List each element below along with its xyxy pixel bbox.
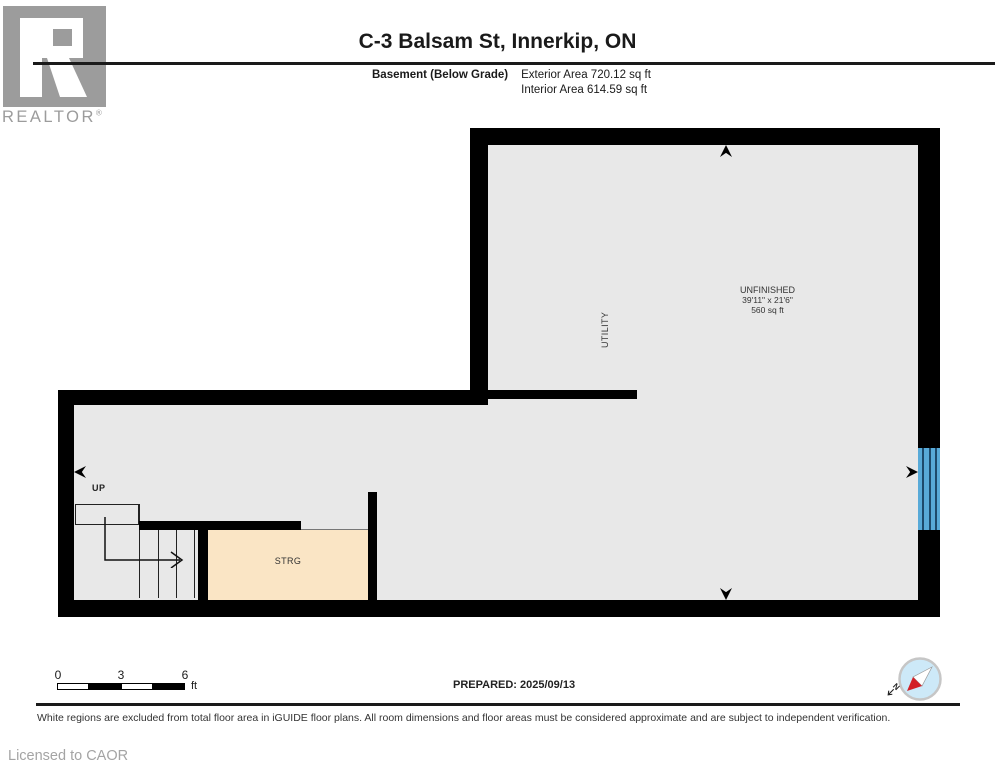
floor-summary: Basement (Below Grade) Exterior Area 720…: [372, 68, 651, 98]
wall-main-left: [470, 128, 488, 405]
storage-room-label: STRG: [238, 556, 338, 566]
page-title: C-3 Balsam St, Innerkip, ON: [0, 30, 995, 54]
scale-bar-segment: [89, 683, 121, 690]
wall-stair-divider: [198, 521, 208, 600]
wall-left-outer: [58, 390, 74, 617]
window-pane-line: [929, 448, 931, 530]
measure-arrow-right-icon: [906, 466, 918, 478]
realtor-logo-icon: [3, 6, 106, 107]
registered-mark: ®: [96, 109, 102, 118]
realtor-wordmark: REALTOR®: [2, 108, 132, 127]
brand-name: REALTOR: [2, 108, 96, 126]
wall-storage-top: [139, 521, 301, 530]
wall-utility-divider: [488, 390, 637, 399]
scale-bar-segment: [121, 683, 153, 690]
main-room-floor: [478, 138, 923, 602]
utility-room-label: UTILITY: [600, 303, 610, 357]
floor-areas: Exterior Area 720.12 sq ft Interior Area…: [521, 68, 651, 98]
scale-tick-0: 0: [55, 668, 62, 682]
interior-area-value: Interior Area 614.59 sq ft: [521, 83, 651, 98]
wall-top: [470, 128, 940, 145]
footer-divider: [36, 703, 960, 706]
measure-arrow-down-icon: [720, 588, 732, 600]
header-divider: [33, 62, 995, 65]
stair-tread: [194, 529, 195, 598]
stairs-up-label: UP: [92, 483, 106, 493]
measure-arrow-left-icon: [74, 466, 86, 478]
wall-lower-top: [58, 390, 488, 405]
window-pane-line: [922, 448, 924, 530]
scale-bar-segment: [153, 683, 185, 690]
wall-right-upper: [918, 128, 940, 448]
compass-icon: [896, 655, 944, 703]
scale-tick-3: 3: [118, 668, 125, 682]
stair-direction-arrow-icon: [98, 510, 190, 568]
window-icon: [918, 448, 940, 530]
window-pane-line: [935, 448, 937, 530]
floor-name-label: Basement (Below Grade): [372, 68, 508, 98]
exterior-area-value: Exterior Area 720.12 sq ft: [521, 68, 651, 83]
disclaimer-text: White regions are excluded from total fl…: [37, 712, 967, 724]
wall-bottom: [58, 600, 940, 617]
room-area: 560 sq ft: [700, 306, 835, 316]
north-indicator-icon: N: [883, 680, 903, 700]
scale-tick-6: 6: [182, 668, 189, 682]
measure-arrow-up-icon: [720, 145, 732, 157]
scale-bar-segment: [57, 683, 89, 690]
floorplan-page: REALTOR® C-3 Balsam St, Innerkip, ON Bas…: [0, 0, 995, 768]
unfinished-room-label: UNFINISHED 39'11" x 21'6" 560 sq ft: [700, 286, 835, 315]
prepared-date: PREPARED: 2025/09/13: [453, 679, 575, 691]
wall-storage-right: [368, 492, 377, 600]
license-text: Licensed to CAOR: [8, 748, 128, 764]
scale-unit-label: ft: [191, 680, 197, 692]
